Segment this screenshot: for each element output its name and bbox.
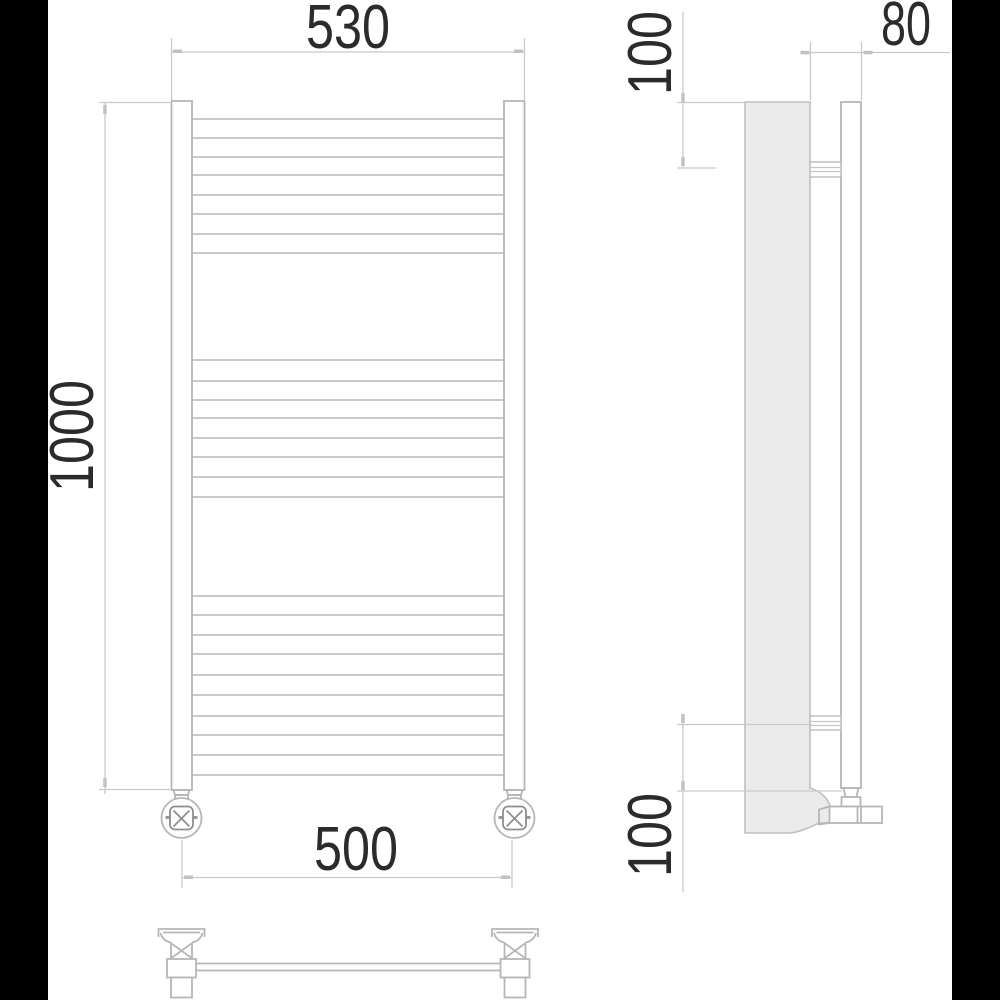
dimension-label-bottom-offset: 100 <box>616 793 685 877</box>
side-view <box>745 102 882 833</box>
side-bracket-bottom <box>810 716 841 730</box>
plan-view <box>159 929 539 998</box>
rung-group-middle <box>192 360 504 497</box>
dimension-label-height: 1000 <box>38 380 107 492</box>
letterbox-left <box>0 0 48 1000</box>
letterbox-right <box>952 0 1000 1000</box>
front-view <box>162 101 535 838</box>
front-post-left <box>172 101 193 790</box>
dimension-height-1000: 1000 <box>38 103 170 795</box>
dimension-label-top-offset: 100 <box>616 11 685 95</box>
side-bracket-top <box>810 162 841 177</box>
front-valve-left <box>162 790 202 838</box>
front-valve-right <box>495 790 535 838</box>
towel-radiator-technical-drawing: 530 1000 500 <box>0 0 1000 1000</box>
dimension-width-530: 530 <box>172 0 525 100</box>
drawing-canvas: 530 1000 500 <box>0 0 1000 1000</box>
rung-group-top <box>192 119 504 253</box>
dimension-label-spacing: 500 <box>314 815 398 884</box>
dimension-label-width: 530 <box>306 0 390 62</box>
dimension-top-offset-100: 100 <box>616 11 745 168</box>
side-post <box>841 102 861 788</box>
dimension-depth-80: 80 <box>801 0 951 100</box>
front-post-right <box>504 101 525 790</box>
dimension-label-depth: 80 <box>881 0 931 59</box>
rung-group-bottom <box>192 596 504 775</box>
dimension-spacing-500: 500 <box>182 815 512 888</box>
